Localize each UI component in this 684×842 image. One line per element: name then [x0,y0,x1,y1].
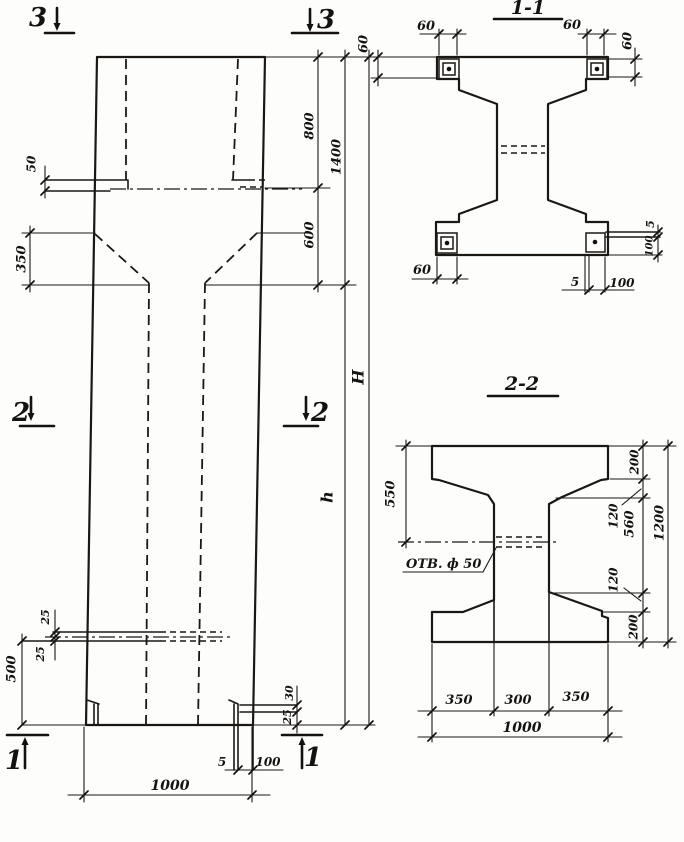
arrow-3-right [307,24,314,32]
hidden-lines-short [160,180,265,641]
dim-60-top-right-w: 60 [563,18,581,33]
dim-100-base-label: 100 [255,755,281,769]
arrow-1-left [22,737,29,745]
hole-label: ОТВ. ф 50 [406,557,481,572]
section-2-2: 2-2 ОТВ. ф 50 550 200 120 560 120 200 12… [384,373,677,742]
marker-3-left-label: 3 [29,3,47,33]
section-1-1-dim-lines [371,29,662,292]
plate-top-left-dot [447,67,452,72]
dim-800-label: 800 [303,112,318,139]
dim-25-corner-label: 25 [281,709,294,725]
dim-200-bottom-label: 200 [627,614,641,641]
marker-2-right-label: 2 [310,398,329,428]
dim-60-bottom-left: 60 [413,263,431,278]
corner-detail-left [87,700,99,725]
section-2-2-title: 2-2 [504,373,539,395]
dim-25-lower-label: 25 [34,646,47,662]
dim-350-right-label: 350 [562,690,589,705]
section-1-1-outline [436,57,608,255]
section-2-2-dim-lines [396,440,676,742]
center-lines [45,189,302,637]
dim-1000-label: 1000 [503,720,542,736]
elevation-view: 3 3 2 2 1 1 50 350 800 600 1400 h H 25 2… [5,3,377,802]
dim-5-bottom: 5 [571,275,579,289]
dim-50-label: 50 [25,155,39,172]
dim-5-base-label: 5 [218,755,226,769]
arrow-2-right [303,413,310,421]
technical-drawing: 3 3 2 2 1 1 50 350 800 600 1400 h H 25 2… [0,0,684,842]
dim-100-bottom: 100 [609,276,635,290]
section-marker-lines [7,8,338,768]
dim-350-left-label: 350 [445,693,472,708]
dim-550-label: 550 [384,480,399,507]
section-2-2-web-edges [494,592,549,642]
dim-300-label: 300 [504,693,531,708]
dim-30-corner-label: 30 [283,685,296,701]
dim-120-top-label: 120 [607,503,621,529]
section-1-1-title: 1-1 [511,0,545,19]
marker-1-right-label: 1 [304,743,322,773]
dim-25-upper-label: 25 [39,609,52,625]
section-1-1-web-dashes [501,146,545,153]
dim-60-top-right-h: 60 [621,32,636,50]
dim-120-bottom-label: 120 [607,567,621,593]
dim-500-label: 500 [5,655,20,682]
plate-bottom-right-dot [593,240,598,245]
dim-350-label: 350 [15,245,30,272]
arrow-3-left [54,23,61,31]
marker-2-left-label: 2 [11,398,30,428]
dim-h-label: h [318,491,337,503]
plate-bottom-left-dot [445,241,450,246]
plate-top-right-dot [595,67,600,72]
dim-60-top-left-w: 60 [417,19,435,34]
drawing-sheet: 3 3 2 2 1 1 50 350 800 600 1400 h H 25 2… [0,0,684,842]
dim-1400-label: 1400 [330,139,345,175]
marker-3-right-label: 3 [317,5,335,35]
dim-200-top-label: 200 [628,449,642,476]
dim-60-top-left-h: 60 [357,35,372,53]
dim-600-label: 600 [303,221,318,248]
section-1-1: 1-1 60 60 60 60 60 5 100 [357,0,663,294]
dim-H-label: H [349,369,368,386]
dim-1200-label: 1200 [653,505,668,541]
section-2-2-ticks [402,442,672,741]
column-outline [86,57,265,725]
hidden-lines [95,59,257,725]
dim-100-side: 100 [645,236,656,257]
section-2-2-outline [432,446,608,642]
dim-1000-label: 1000 [151,778,190,794]
marker-1-left-label: 1 [5,746,23,776]
dim-5-side: 5 [644,220,657,228]
dim-560-label: 560 [623,510,638,537]
